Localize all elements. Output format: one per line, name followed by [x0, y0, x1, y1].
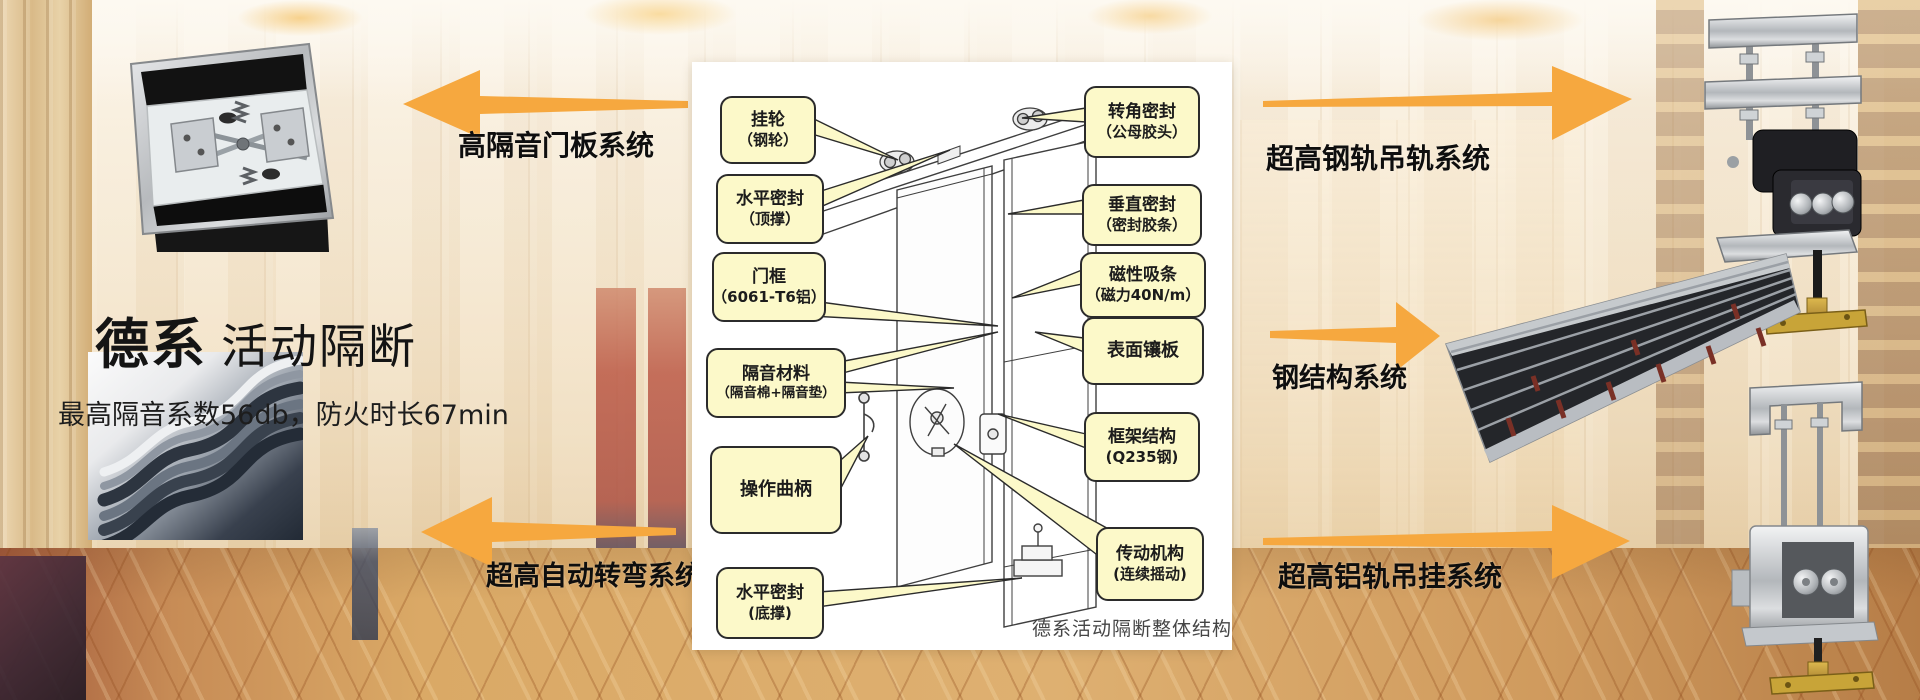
callout-vertical-seal: 垂直密封 （密封胶条）	[1082, 184, 1202, 246]
label-auto-turning-system: 超高自动转弯系统	[486, 554, 702, 593]
title-subtitle: 最高隔音系数56db，防火时长67min	[58, 393, 538, 432]
callout-door-frame: 门框 （6061-T6铝）	[712, 252, 826, 322]
crank-drawing	[859, 393, 874, 461]
callout-hanging-wheel: 挂轮 （钢轮）	[720, 96, 816, 164]
callout-text: 挂轮	[751, 109, 785, 131]
callout-subtext: （密封胶条）	[1097, 216, 1187, 236]
callout-subtext: (底撑)	[748, 604, 792, 624]
callout-bottom-horizontal-seal: 水平密封 (底撑)	[716, 567, 824, 639]
title-block: 德系活动隔断 最高隔音系数56db，防火时长67min	[58, 300, 538, 432]
callout-transmission: 传动机构 (连续摇动)	[1096, 527, 1204, 601]
label-aluminum-rail-hanging-system: 超高铝轨吊挂系统	[1278, 555, 1502, 595]
diagram-caption: 德系活动隔断整体结构	[1032, 614, 1232, 641]
callout-surface-panel: 表面镶板	[1082, 317, 1204, 385]
callout-subtext: (连续摇动)	[1113, 565, 1187, 585]
callout-text: 表面镶板	[1107, 339, 1179, 362]
callout-text: 操作曲柄	[740, 478, 812, 501]
aluminum-rail-hanger-photo	[1722, 376, 1887, 698]
callout-text: 水平密封	[736, 582, 804, 604]
title-brand: 德系	[95, 313, 207, 376]
dark-corner	[0, 556, 86, 700]
callout-text: 垂直密封	[1108, 194, 1176, 216]
callout-frame-structure: 框架结构 (Q235钢)	[1084, 412, 1200, 482]
callout-magnetic-strip: 磁性吸条 （磁力40N/m）	[1080, 252, 1206, 318]
callout-sound-insulation: 隔音材料 （隔音棉+隔音垫）	[706, 348, 846, 418]
callout-text: 框架结构	[1108, 426, 1176, 448]
callout-subtext: （磁力40N/m）	[1086, 286, 1201, 306]
callout-top-horizontal-seal: 水平密封 （顶撑）	[716, 174, 824, 244]
callout-text: 水平密封	[736, 188, 804, 210]
label-steel-rail-hanging-system: 超高钢轨吊轨系统	[1266, 137, 1490, 177]
callout-text: 门框	[752, 266, 786, 288]
red-column	[648, 288, 686, 572]
red-column	[596, 288, 636, 572]
callout-text: 隔音材料	[742, 363, 810, 385]
callout-subtext: (Q235钢)	[1106, 448, 1179, 468]
callout-corner-seal: 转角密封 （公母胶头）	[1084, 86, 1200, 158]
callout-text: 传动机构	[1116, 543, 1184, 565]
callout-subtext: （钢轮）	[738, 131, 798, 151]
callout-operating-crank: 操作曲柄	[710, 446, 842, 534]
label-door-panel-system: 高隔音门板系统	[458, 124, 654, 164]
label-steel-structure-system: 钢结构系统	[1272, 356, 1407, 395]
callout-subtext: （隔音棉+隔音垫）	[716, 385, 835, 403]
callout-subtext: （顶撑）	[740, 210, 800, 230]
page-title: 德系活动隔断	[58, 300, 538, 379]
door-panel-mechanism-photo	[95, 6, 347, 252]
page: 高隔音门板系统 超高自动转弯系统 超高钢轨吊轨系统 钢结构系统 超高铝轨吊挂系统…	[0, 0, 1920, 700]
dark-doorway	[352, 528, 378, 640]
callout-text: 转角密封	[1108, 101, 1176, 123]
callout-subtext: （公母胶头）	[1097, 123, 1187, 143]
structure-diagram-panel: 挂轮 （钢轮） 水平密封 （顶撑） 门框 （6061-T6铝） 隔音材料 （隔音…	[692, 62, 1232, 650]
callout-text: 磁性吸条	[1109, 264, 1177, 286]
callout-subtext: （6061-T6铝）	[712, 288, 826, 308]
title-product: 活动隔断	[221, 320, 417, 375]
